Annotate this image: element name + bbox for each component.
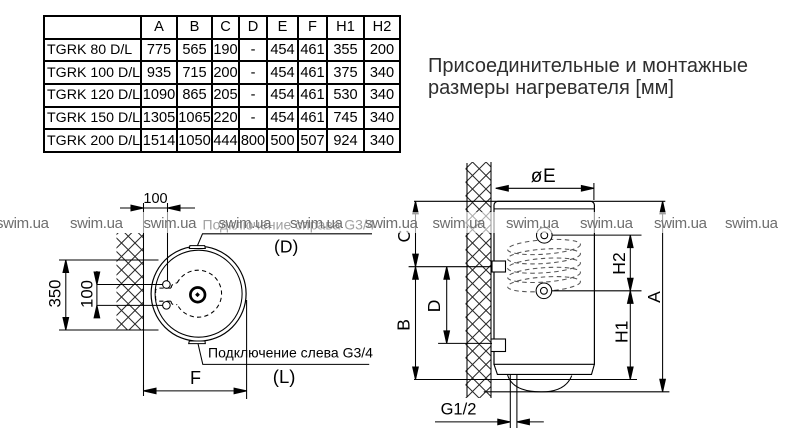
- svg-text:swim.ua: swim.ua: [290, 215, 344, 232]
- svg-text:swim.ua: swim.ua: [725, 215, 779, 232]
- svg-text:B: B: [394, 319, 414, 331]
- svg-text:G1/2: G1/2: [441, 401, 477, 419]
- svg-text:swim.ua: swim.ua: [144, 215, 198, 232]
- svg-text:Подключение слева G3/4: Подключение слева G3/4: [208, 345, 373, 361]
- svg-text:swim.ua: swim.ua: [70, 215, 124, 232]
- svg-text:F: F: [190, 368, 201, 388]
- svg-text:swim.ua: swim.ua: [433, 215, 487, 232]
- svg-text:100: 100: [143, 191, 167, 207]
- svg-text:350: 350: [46, 280, 65, 308]
- svg-text:swim.ua: swim.ua: [0, 215, 50, 232]
- svg-text:swim.ua: swim.ua: [365, 215, 419, 232]
- svg-text:H2: H2: [609, 252, 629, 274]
- svg-text:øE: øE: [531, 166, 556, 187]
- svg-text:100: 100: [78, 280, 97, 308]
- svg-text:H1: H1: [612, 321, 632, 343]
- svg-text:A: A: [644, 291, 664, 303]
- svg-text:swim.ua: swim.ua: [219, 215, 273, 232]
- svg-text:swim.ua: swim.ua: [654, 215, 708, 232]
- svg-text:D: D: [424, 300, 444, 313]
- svg-text:swim.ua: swim.ua: [580, 215, 634, 232]
- svg-text:(L): (L): [273, 366, 296, 387]
- svg-text:swim.ua: swim.ua: [506, 215, 560, 232]
- svg-text:(D): (D): [274, 236, 298, 256]
